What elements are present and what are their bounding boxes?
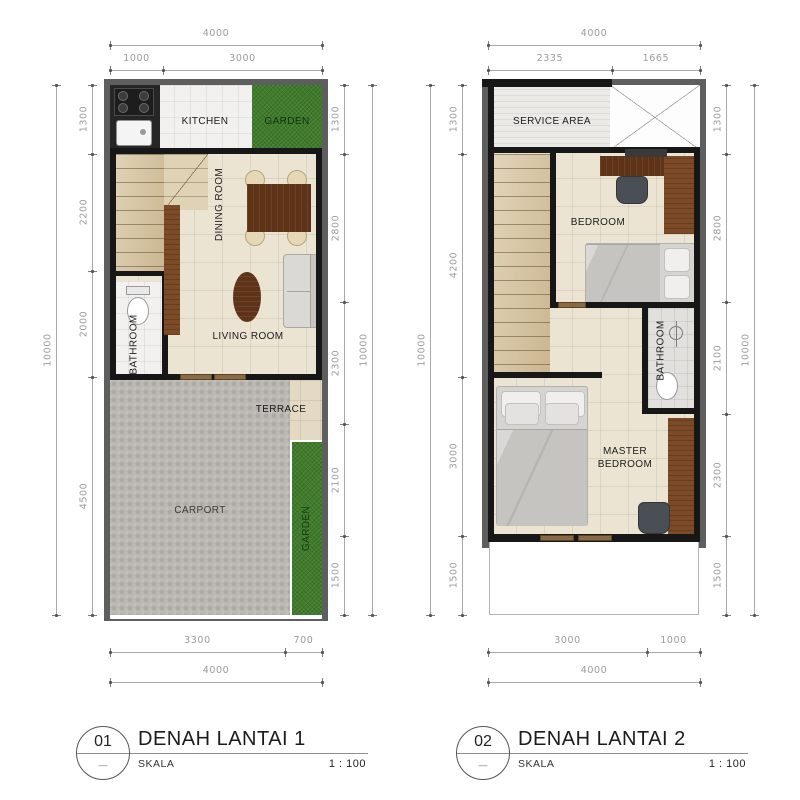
dim-tick-dot bbox=[321, 681, 324, 684]
dim-line bbox=[488, 682, 700, 683]
dim-tick-dot bbox=[699, 681, 702, 684]
dim-line bbox=[372, 85, 373, 615]
door-threshold bbox=[180, 374, 212, 380]
wall bbox=[110, 271, 168, 276]
dim-label: 10000 bbox=[741, 333, 752, 366]
dim-tick-dot bbox=[371, 614, 374, 617]
dim-tick-dot bbox=[487, 681, 490, 684]
window-sill bbox=[578, 535, 612, 541]
plan-number: 01 bbox=[77, 733, 129, 751]
plan-number-badge: 01 — bbox=[76, 726, 130, 780]
desk bbox=[668, 418, 696, 536]
door-threshold bbox=[558, 302, 586, 308]
dim-tick-dot bbox=[461, 84, 464, 87]
dim-label: 700 bbox=[293, 635, 313, 646]
staircase bbox=[494, 154, 550, 374]
dim-tick-dot bbox=[429, 84, 432, 87]
dim-tick-dot bbox=[91, 84, 94, 87]
dim-tick-dot bbox=[429, 614, 432, 617]
dim-label: 2300 bbox=[331, 350, 342, 377]
void-area bbox=[610, 85, 700, 150]
pillow bbox=[664, 248, 690, 272]
dim-tick-dot bbox=[461, 535, 464, 538]
dim-line bbox=[110, 652, 322, 653]
dim-line bbox=[430, 85, 431, 615]
dim-tick-dot bbox=[753, 84, 756, 87]
scale-value: 1 : 100 bbox=[709, 758, 746, 770]
wall bbox=[488, 147, 700, 153]
desk-chair bbox=[616, 176, 648, 204]
plan-number-dash: — bbox=[77, 760, 129, 770]
stove-icon bbox=[114, 88, 154, 116]
plan-number-dash: — bbox=[457, 760, 509, 770]
blanket bbox=[497, 429, 587, 526]
dim-tick-dot bbox=[487, 44, 490, 47]
door-threshold bbox=[214, 374, 246, 380]
single-bed bbox=[585, 243, 696, 304]
dim-label: 10000 bbox=[417, 333, 428, 366]
wall bbox=[550, 153, 556, 308]
dim-label: 10000 bbox=[43, 333, 54, 366]
dim-tick-dot bbox=[461, 153, 464, 156]
drawing-canvas: KITCHEN GARDEN DINING ROOM BATHROOM LIVI… bbox=[0, 0, 800, 800]
dim-label: 2000 bbox=[79, 310, 90, 337]
dim-label: 1300 bbox=[713, 106, 724, 133]
burner-icon bbox=[118, 91, 128, 101]
dim-line bbox=[110, 682, 322, 683]
dim-tick-dot bbox=[343, 423, 346, 426]
room-label-bathroom-1: BATHROOM bbox=[122, 315, 146, 373]
dim-tick-dot bbox=[343, 153, 346, 156]
scale-label: SKALA bbox=[138, 758, 174, 770]
dim-label: 3000 bbox=[554, 635, 581, 646]
dim-tick-dot bbox=[91, 614, 94, 617]
dim-tick-dot bbox=[611, 69, 614, 72]
title-block-2: 02 — DENAH LANTAI 2 SKALA 1 : 100 bbox=[456, 722, 748, 786]
dim-tick-dot bbox=[343, 535, 346, 538]
dim-label: 2300 bbox=[713, 461, 724, 488]
wall bbox=[642, 308, 648, 412]
wardrobe bbox=[664, 156, 696, 234]
open-strip bbox=[489, 542, 699, 615]
window-sill bbox=[540, 535, 574, 541]
wall bbox=[488, 372, 602, 378]
room-label-master: MASTER BEDROOM bbox=[592, 446, 658, 471]
coffee-table bbox=[233, 272, 261, 322]
plan-title: DENAH LANTAI 2 bbox=[518, 728, 686, 751]
wall bbox=[694, 147, 700, 542]
dim-tick-dot bbox=[646, 651, 649, 654]
wall bbox=[482, 79, 612, 87]
desk-chair bbox=[638, 502, 670, 534]
dim-tick-dot bbox=[725, 535, 728, 538]
dim-label: 4000 bbox=[581, 665, 608, 676]
dim-label: 4200 bbox=[449, 252, 460, 279]
dim-line bbox=[92, 85, 93, 615]
dim-label: 3000 bbox=[449, 443, 460, 470]
dim-tick-dot bbox=[343, 614, 346, 617]
dim-label: 2100 bbox=[331, 467, 342, 494]
dim-label: 1300 bbox=[331, 106, 342, 133]
dim-line bbox=[110, 45, 322, 46]
dim-label: 1000 bbox=[660, 635, 687, 646]
wall bbox=[110, 148, 116, 380]
dim-label: 2800 bbox=[331, 215, 342, 242]
dim-tick-dot bbox=[55, 614, 58, 617]
dim-tick-dot bbox=[725, 153, 728, 156]
dim-label: 1500 bbox=[331, 562, 342, 589]
double-bed bbox=[496, 386, 588, 526]
pillow bbox=[664, 275, 690, 299]
dim-label: 2200 bbox=[79, 199, 90, 226]
scale-value: 1 : 100 bbox=[329, 758, 366, 770]
blanket bbox=[586, 244, 660, 304]
burner-icon bbox=[139, 91, 149, 101]
dim-tick-dot bbox=[109, 44, 112, 47]
plan-title: DENAH LANTAI 1 bbox=[138, 728, 306, 751]
room-label-service: SERVICE AREA bbox=[494, 116, 610, 129]
dim-tick-dot bbox=[284, 651, 287, 654]
dim-label: 2335 bbox=[537, 53, 564, 64]
dim-tick-dot bbox=[343, 301, 346, 304]
dim-tick-dot bbox=[725, 413, 728, 416]
room-label-garden-top: GARDEN bbox=[252, 116, 322, 129]
dim-label: 1300 bbox=[449, 106, 460, 133]
dim-tick-dot bbox=[343, 84, 346, 87]
dim-label: 2100 bbox=[713, 345, 724, 372]
dim-tick-dot bbox=[55, 84, 58, 87]
dim-tick-dot bbox=[487, 69, 490, 72]
pillow bbox=[545, 403, 579, 425]
room-label-carport: CARPORT bbox=[140, 505, 260, 518]
staircase bbox=[112, 154, 164, 272]
stair-landing bbox=[164, 154, 208, 210]
dim-label: 3000 bbox=[229, 53, 256, 64]
dim-label: 1500 bbox=[449, 562, 460, 589]
dim-label: 10000 bbox=[359, 333, 370, 366]
scale-label: SKALA bbox=[518, 758, 554, 770]
dim-tick-dot bbox=[91, 153, 94, 156]
dim-tick-dot bbox=[109, 69, 112, 72]
dim-tick-dot bbox=[109, 651, 112, 654]
dim-tick-dot bbox=[321, 69, 324, 72]
plan-number-badge: 02 — bbox=[456, 726, 510, 780]
dim-tick-dot bbox=[753, 614, 756, 617]
dim-label: 4500 bbox=[79, 482, 90, 509]
dim-tick-dot bbox=[461, 376, 464, 379]
plan-number: 02 bbox=[457, 733, 509, 751]
dim-label: 2800 bbox=[713, 215, 724, 242]
room-label-dining: DINING ROOM bbox=[205, 165, 235, 243]
wall bbox=[488, 85, 494, 542]
room-label-living: LIVING ROOM bbox=[200, 331, 296, 344]
dim-tick-dot bbox=[725, 301, 728, 304]
room-label-terrace: TERRACE bbox=[240, 404, 322, 417]
sink-icon bbox=[116, 120, 152, 146]
dim-line bbox=[488, 652, 700, 653]
dim-tick-dot bbox=[321, 44, 324, 47]
wall bbox=[316, 148, 322, 380]
dim-label: 1665 bbox=[643, 53, 670, 64]
dim-tick-dot bbox=[371, 84, 374, 87]
dim-label: 1300 bbox=[79, 106, 90, 133]
burner-icon bbox=[139, 103, 149, 113]
dim-tick-dot bbox=[725, 84, 728, 87]
dim-tick-dot bbox=[487, 651, 490, 654]
dim-line bbox=[110, 70, 322, 71]
dim-tick-dot bbox=[162, 69, 165, 72]
dim-label: 4000 bbox=[203, 28, 230, 39]
dim-line bbox=[488, 45, 700, 46]
room-label-kitchen: KITCHEN bbox=[158, 116, 252, 129]
window-lintel bbox=[625, 149, 667, 157]
room-label-bathroom-2: BATHROOM bbox=[650, 318, 672, 382]
dim-tick-dot bbox=[699, 44, 702, 47]
room-label-bedroom: BEDROOM bbox=[548, 217, 648, 230]
dim-label: 1000 bbox=[123, 53, 150, 64]
dim-line bbox=[56, 85, 57, 615]
dim-line bbox=[488, 70, 700, 71]
dining-table bbox=[247, 184, 311, 232]
dim-label: 4000 bbox=[581, 28, 608, 39]
dim-tick-dot bbox=[91, 376, 94, 379]
wood-partition bbox=[164, 205, 180, 335]
dim-label: 1500 bbox=[713, 562, 724, 589]
dim-tick-dot bbox=[461, 614, 464, 617]
dim-line bbox=[754, 85, 755, 615]
room-label-garden-side: GARDEN bbox=[293, 495, 321, 561]
wall bbox=[642, 408, 700, 414]
dim-tick-dot bbox=[91, 270, 94, 273]
burner-icon bbox=[118, 103, 128, 113]
wall bbox=[110, 148, 322, 154]
pillow bbox=[505, 403, 539, 425]
dim-tick-dot bbox=[321, 651, 324, 654]
dim-label: 3300 bbox=[184, 635, 211, 646]
dim-label: 4000 bbox=[203, 665, 230, 676]
dim-tick-dot bbox=[699, 651, 702, 654]
toilet-icon bbox=[126, 286, 150, 295]
dim-tick-dot bbox=[699, 69, 702, 72]
dim-tick-dot bbox=[725, 614, 728, 617]
dim-tick-dot bbox=[109, 681, 112, 684]
title-block-1: 01 — DENAH LANTAI 1 SKALA 1 : 100 bbox=[76, 722, 368, 786]
